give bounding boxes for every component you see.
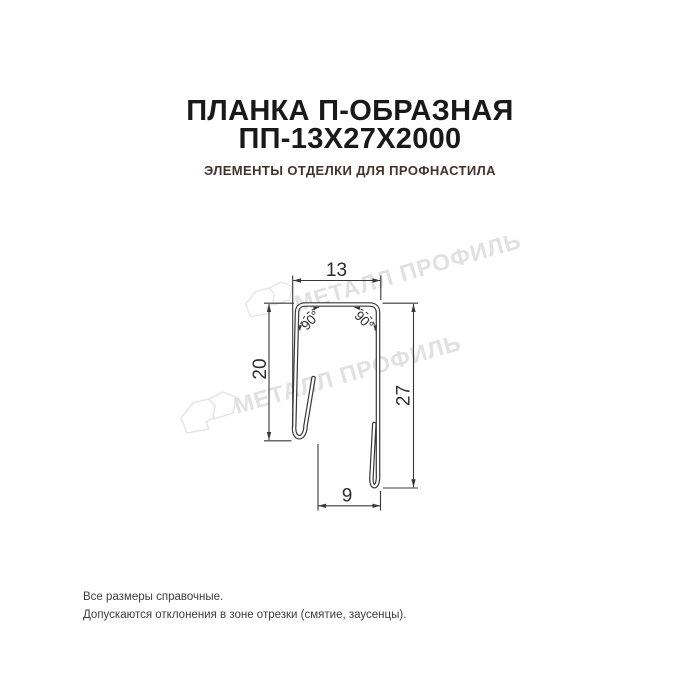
angle-annotation-right: 90°: [351, 307, 377, 333]
angle-label-right: 90°: [351, 308, 376, 333]
dim-label-20: 20: [250, 358, 271, 379]
footer-note-1: Все размеры справочные.: [83, 589, 406, 607]
dimension-right-height: 27: [383, 303, 419, 488]
footer-notes: Все размеры справочные. Допускаются откл…: [83, 589, 406, 625]
dimension-left-height: 20: [250, 303, 294, 441]
watermark-middle: МЕТАЛЛ ПРОФИЛЬ: [181, 329, 464, 433]
footer-note-2: Допускаются отклонения в зоне отрезки (с…: [83, 607, 406, 625]
dim-label-9: 9: [342, 486, 353, 507]
dim-label-13: 13: [326, 260, 347, 281]
metall-profil-logo-icon: [181, 392, 236, 433]
dim-label-27: 27: [394, 385, 415, 406]
